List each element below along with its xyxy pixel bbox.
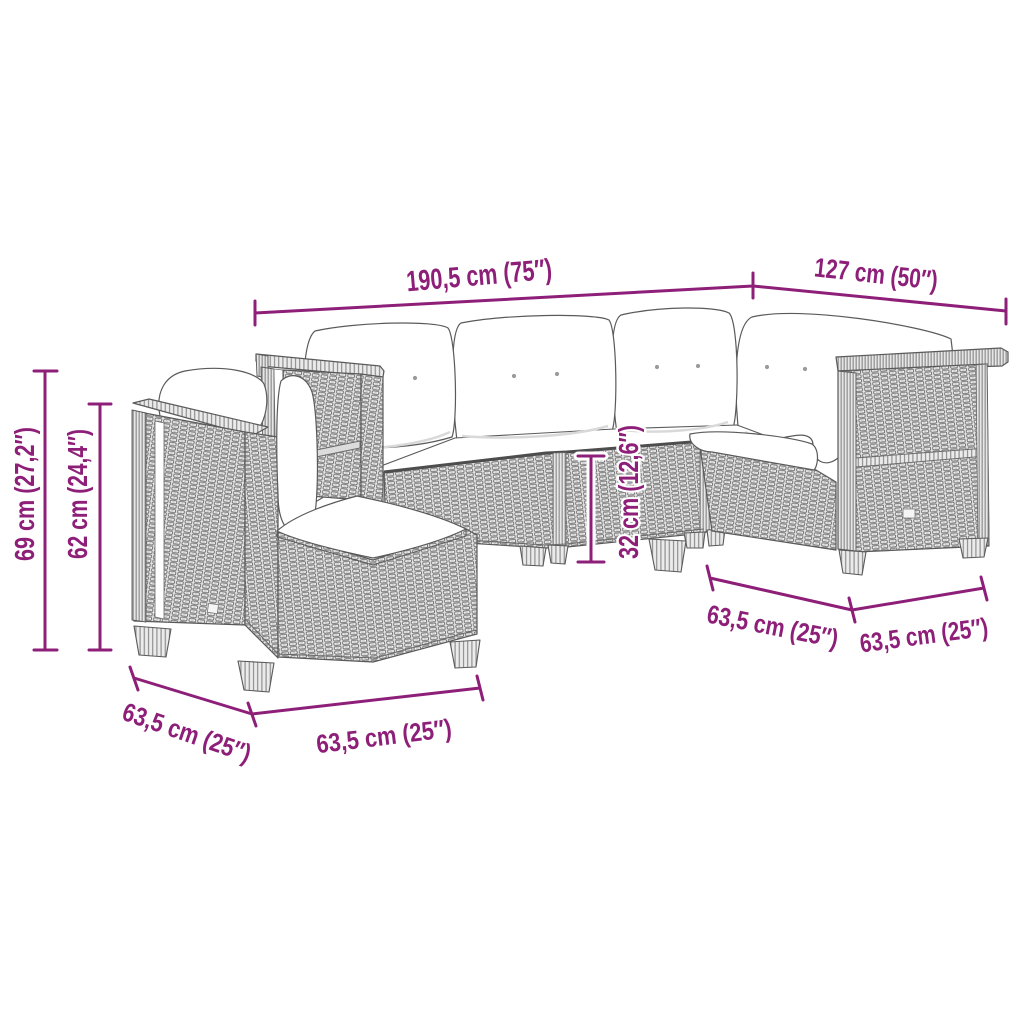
svg-text:69 cm (27,2″): 69 cm (27,2″)	[9, 427, 40, 561]
svg-text:62 cm (24,4″): 62 cm (24,4″)	[62, 429, 93, 559]
svg-text:32 cm (12,6″): 32 cm (12,6″)	[613, 425, 644, 559]
